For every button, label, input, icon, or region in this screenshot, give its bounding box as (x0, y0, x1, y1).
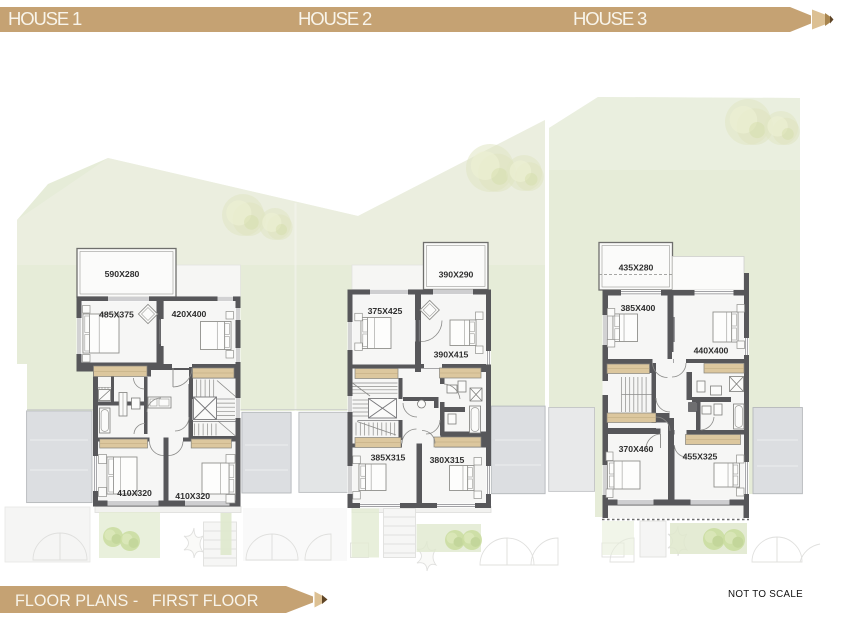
svg-text:390X415: 390X415 (434, 350, 469, 360)
svg-text:375X425: 375X425 (368, 306, 403, 316)
svg-text:385X315: 385X315 (371, 453, 406, 463)
svg-text:HOUSE 1: HOUSE 1 (8, 8, 82, 29)
svg-text:455X325: 455X325 (683, 452, 718, 462)
svg-text:410X320: 410X320 (117, 488, 152, 498)
svg-text:385X400: 385X400 (621, 303, 656, 313)
svg-text:390X290: 390X290 (439, 270, 474, 280)
svg-text:380X315: 380X315 (430, 455, 465, 465)
svg-text:440X400: 440X400 (694, 346, 729, 356)
svg-text:435X280: 435X280 (619, 263, 654, 273)
svg-text:FLOOR PLANS - FIRST FLOOR: FLOOR PLANS - FIRST FLOOR (15, 592, 258, 610)
svg-text:HOUSE 2: HOUSE 2 (298, 8, 372, 29)
svg-text:485X375: 485X375 (99, 310, 134, 320)
svg-text:590X280: 590X280 (105, 269, 140, 279)
svg-text:NOT TO SCALE: NOT TO SCALE (728, 589, 803, 600)
svg-text:420X400: 420X400 (172, 309, 207, 319)
svg-text:370X460: 370X460 (619, 444, 654, 454)
svg-text:410X320: 410X320 (175, 491, 210, 501)
svg-text:HOUSE 3: HOUSE 3 (573, 8, 647, 29)
